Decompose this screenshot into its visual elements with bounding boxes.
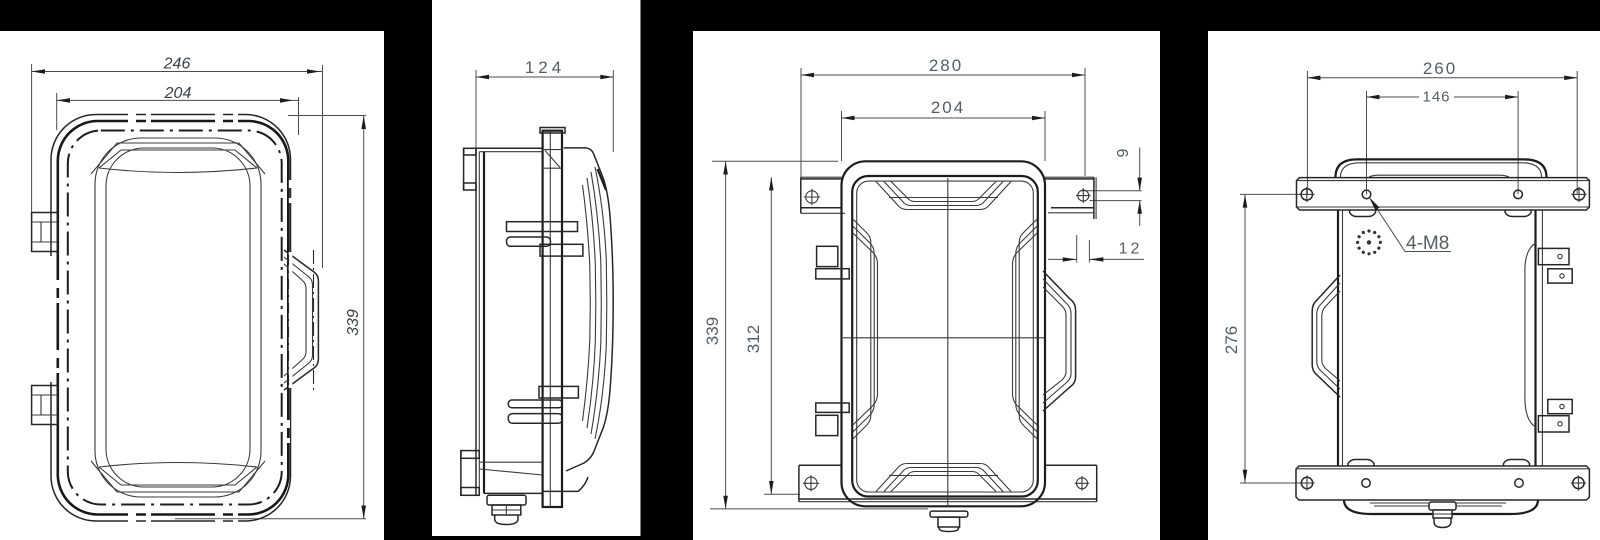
svg-text:204: 204 <box>164 85 192 102</box>
svg-text:146: 146 <box>1422 89 1450 106</box>
svg-text:9: 9 <box>1115 148 1132 157</box>
svg-text:339: 339 <box>703 317 722 345</box>
svg-text:12: 12 <box>1119 241 1143 258</box>
svg-text:280: 280 <box>929 56 963 75</box>
svg-text:339: 339 <box>345 309 362 336</box>
svg-text:260: 260 <box>1423 59 1457 78</box>
svg-text:124: 124 <box>525 58 565 77</box>
svg-text:4-M8: 4-M8 <box>1406 233 1449 254</box>
svg-text:312: 312 <box>744 325 763 353</box>
svg-text:276: 276 <box>1222 326 1241 354</box>
svg-text:246: 246 <box>163 56 191 73</box>
svg-text:204: 204 <box>931 98 965 117</box>
